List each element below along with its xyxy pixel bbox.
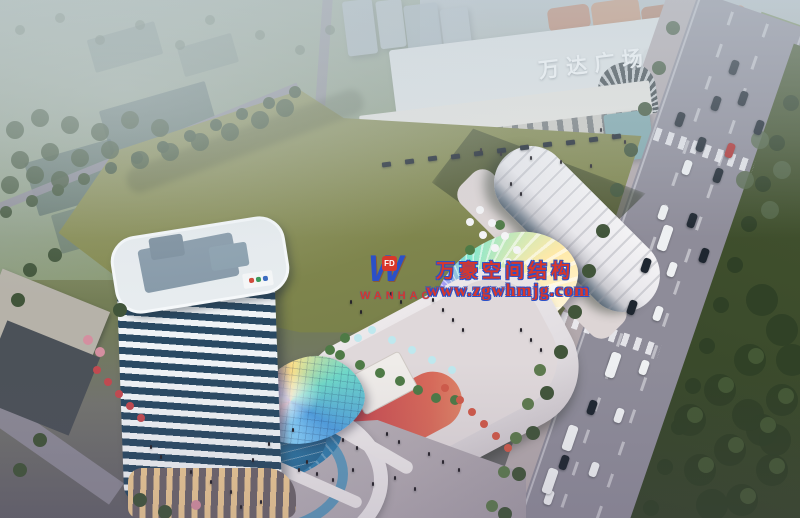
distant-tree: [15, 25, 25, 35]
tree: [61, 116, 79, 134]
distant-building: [177, 33, 239, 77]
tree: [31, 109, 49, 127]
distant-tree: [205, 15, 215, 25]
distant-building: [87, 21, 164, 73]
umbrella-red: [104, 378, 112, 386]
person: [350, 300, 352, 304]
residential-tower: [375, 0, 407, 49]
watermark-url-text: www.zgwhmjg.com: [426, 280, 590, 301]
tree: [23, 263, 37, 277]
watermark-logo-badge: FD: [382, 256, 397, 271]
logo-green-dot: [255, 277, 261, 283]
umbrella-white: [479, 231, 487, 239]
residential-tower: [342, 0, 378, 57]
logo-red-dot: [248, 278, 254, 284]
logo-blue-dot: [262, 276, 268, 282]
aerial-rendering-scene: 万达广场: [0, 0, 800, 518]
tree: [13, 463, 27, 477]
watermark-brand-text: 万豪空间结构: [436, 256, 574, 283]
distant-tree: [255, 30, 265, 40]
umbrella-white: [466, 218, 474, 226]
tree: [6, 121, 24, 139]
distant-tree: [55, 13, 65, 23]
watermark-logo-word: WANHAO: [360, 290, 434, 302]
distant-tree: [295, 45, 305, 55]
tree: [1, 176, 19, 194]
watermark: W FD WANHAO 万豪空间结构 www.zgwhmjg.com: [360, 248, 610, 312]
tower-base-retail: [128, 468, 296, 518]
